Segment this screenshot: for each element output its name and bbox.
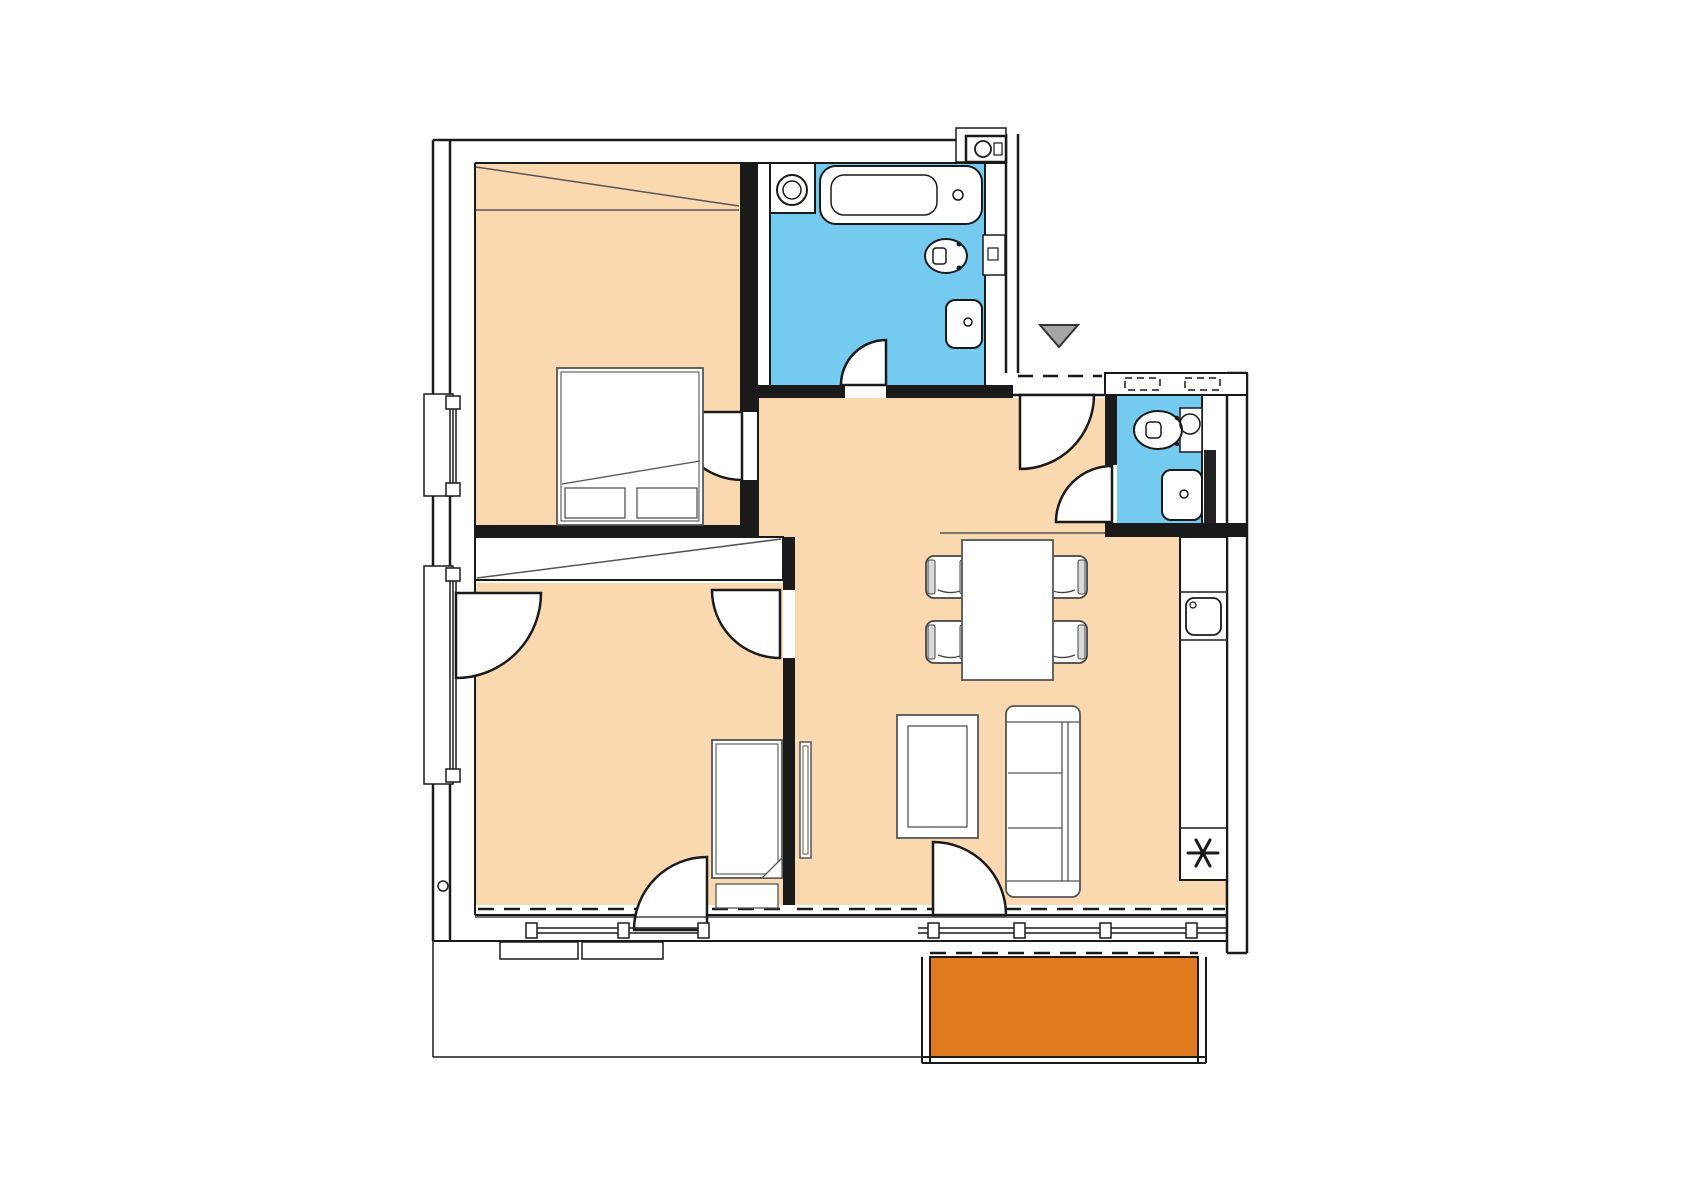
glazing-post-3	[698, 923, 709, 938]
toilet-wc-dot-1	[1175, 416, 1179, 420]
dining-table	[962, 540, 1053, 680]
toilet-bathroom-dot-2	[957, 266, 962, 271]
double-bed-bedroom1	[557, 368, 703, 525]
window-sill-box-2	[582, 942, 663, 959]
glazing-post-2	[618, 923, 629, 938]
downpipe-icon	[438, 881, 448, 891]
wall-bathroom-south-east	[886, 385, 1013, 398]
toilet-bathroom-dot-1	[957, 242, 962, 247]
wall-wc-south	[1105, 523, 1247, 537]
floor-plan-page	[0, 0, 1684, 1190]
balcony	[922, 953, 1206, 1063]
glazing-post-7	[1186, 923, 1197, 938]
balcony-deck	[930, 957, 1198, 1057]
entrance-arrow-icon	[1040, 325, 1078, 347]
duct-shaft	[1204, 450, 1216, 523]
left-windows	[424, 394, 460, 784]
coffee-table-outer	[897, 715, 978, 838]
pillow-1	[565, 488, 625, 518]
glazing-post-6	[1100, 923, 1111, 938]
glazing-post-5	[1014, 923, 1025, 938]
wall-bedroom2-east-lower	[783, 658, 795, 905]
wall-bedroom1-south	[475, 525, 740, 537]
window-sill-box-1	[500, 942, 578, 959]
toilet-wc-dot-2	[1175, 442, 1179, 446]
wall-bedroom1-east-upper	[740, 163, 758, 412]
tv-board	[800, 742, 811, 858]
pillow-2	[637, 488, 697, 518]
wall-bedroom1-east-lower	[740, 480, 758, 537]
wall-bathroom-south-west	[758, 385, 845, 398]
bedroom1-window-post-bottom	[446, 483, 460, 496]
toilet-cistern-niche	[983, 235, 1005, 275]
floor-plan-drawing	[0, 0, 1684, 1190]
wc-top-wall	[1013, 373, 1247, 395]
fixture-box-inner	[966, 136, 1006, 162]
wc-north-wall-band	[1105, 373, 1247, 395]
sink-wc	[1162, 470, 1202, 520]
sofa	[1006, 706, 1080, 897]
kitchen-sink	[1186, 598, 1221, 635]
bedroom2-window-box	[424, 566, 453, 784]
glazing-post-4	[928, 923, 939, 938]
glazing-post-1	[526, 923, 537, 938]
bedroom1-window-post-top	[446, 396, 460, 409]
toilet-wc-bowl	[1134, 411, 1182, 449]
bedroom2-window-post-bottom	[446, 769, 460, 782]
bedroom2-window-post-top	[446, 568, 460, 581]
pillow-single	[716, 884, 778, 908]
facade-fixture-box	[956, 128, 1006, 162]
wall-bedroom2-east-upper	[783, 537, 795, 590]
